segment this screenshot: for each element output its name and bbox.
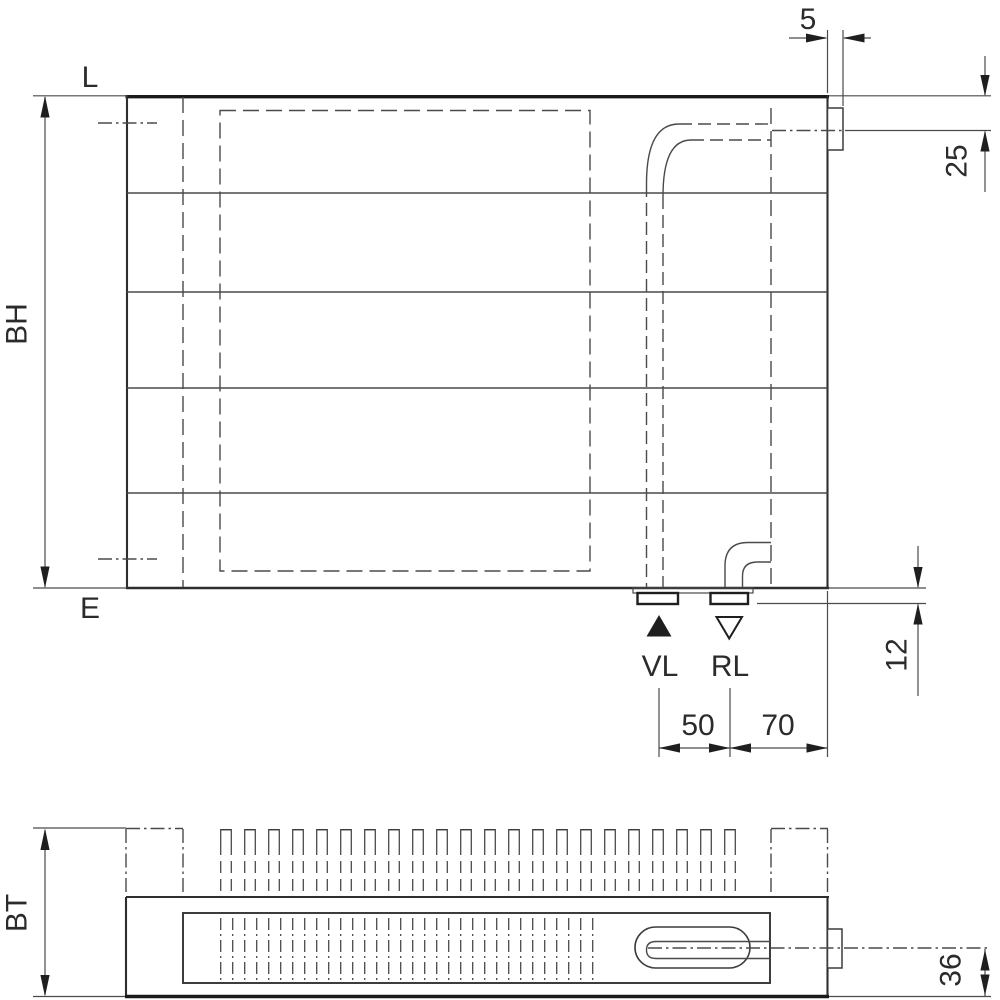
arrowhead-down [913, 567, 922, 588]
convector-fins-inside [220, 917, 594, 980]
dim-bh-label: BH [1, 303, 34, 345]
arrowhead-down [40, 975, 49, 997]
arrowhead-up [913, 604, 922, 625]
label-e: E [80, 592, 100, 625]
vl-connection-stub [638, 593, 679, 604]
arrowhead-down [40, 567, 49, 589]
dimension-5: 5 [789, 3, 871, 106]
arrowhead-up [40, 96, 49, 118]
dimension-25: 25 [772, 56, 991, 192]
dimension-12: 12 [757, 546, 926, 696]
label-l: L [82, 61, 99, 94]
panel-section-lines [127, 193, 828, 493]
dim-5-label: 5 [800, 3, 817, 36]
vl-supply-triangle-icon [647, 615, 672, 637]
rl-connection-stub [711, 593, 749, 604]
dim-25-label: 25 [941, 144, 974, 177]
arrowhead-left [730, 743, 751, 752]
dimension-bt: BT [1, 828, 127, 997]
arrowhead-left [659, 743, 680, 752]
arrowhead-left [843, 34, 865, 43]
pipe-elbow-top-inner [663, 140, 691, 196]
arrowhead-up [980, 131, 989, 152]
bottom-connections [633, 588, 753, 604]
dimension-bh: BH [1, 96, 127, 588]
technical-drawing: BH L E 5 25 12 VL RL [0, 0, 1000, 1000]
rl-return-triangle-icon [717, 617, 743, 639]
dim-36-label: 36 [935, 953, 968, 986]
dim-70-label: 70 [761, 709, 794, 742]
arrowhead-right [709, 743, 730, 752]
top-view [125, 829, 842, 998]
rl-label: RL [711, 650, 749, 683]
arrowhead-down [980, 75, 989, 96]
arrowhead-up [980, 950, 989, 971]
convector-fins-rear [220, 829, 737, 897]
vl-label: VL [642, 650, 679, 683]
flow-markers: VL RL [642, 615, 750, 683]
pipe-elbow-bottom-inner [743, 562, 772, 587]
arrowhead-up [40, 829, 49, 851]
side-connection-tab [828, 108, 844, 150]
front-view [98, 95, 843, 604]
waterway-dashed-outline [220, 111, 590, 572]
radiator-drawing-canvas: BH L E 5 25 12 VL RL [0, 0, 1000, 1000]
pipe-elbow-top-outer [647, 124, 680, 184]
dim-50-label: 50 [681, 709, 714, 742]
hidden-edge-lines [183, 97, 771, 587]
dim-bt-label: BT [1, 894, 34, 932]
arrowhead-right [807, 743, 828, 752]
dim-12-label: 12 [881, 638, 914, 671]
arrowhead-down [980, 975, 989, 996]
